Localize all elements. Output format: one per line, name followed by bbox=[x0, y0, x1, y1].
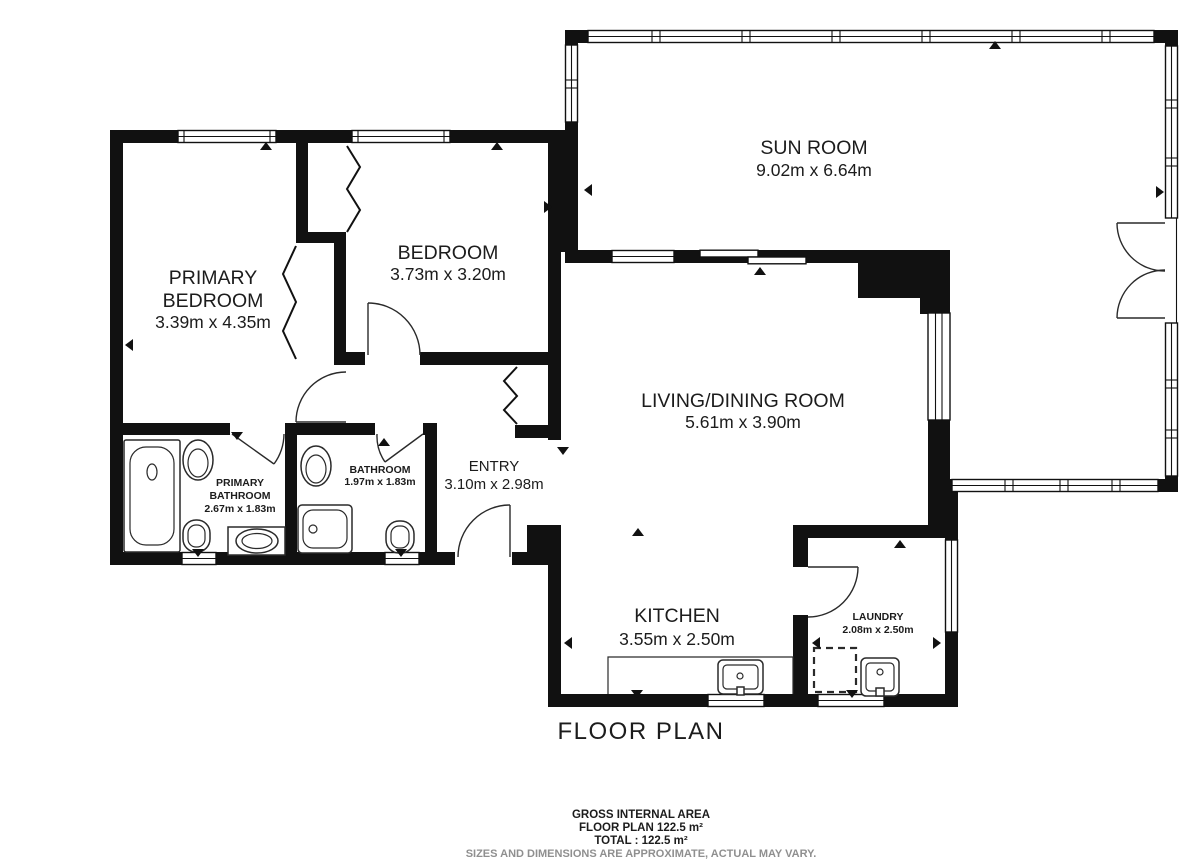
bathtub bbox=[124, 440, 180, 552]
entry-dims: 3.10m x 2.98m bbox=[444, 476, 543, 493]
bathroom-door-swing bbox=[377, 434, 385, 462]
closet-bifold-door bbox=[504, 367, 517, 424]
wall bbox=[110, 423, 230, 435]
marker-arrow bbox=[491, 142, 503, 150]
marker-arrow bbox=[564, 637, 572, 649]
sun-room-dims: 9.02m x 6.64m bbox=[756, 160, 872, 180]
bathroom-label: BATHROOM bbox=[349, 464, 410, 476]
marker-arrow bbox=[1156, 186, 1164, 198]
kitchen-counter bbox=[608, 657, 793, 694]
wall bbox=[548, 130, 578, 252]
primary-bathroom-door-swing bbox=[274, 434, 284, 464]
window bbox=[928, 313, 950, 420]
sliding-door-panel bbox=[748, 257, 806, 264]
marker-arrow bbox=[933, 637, 941, 649]
bedroom-dims: 3.73m x 3.20m bbox=[390, 264, 506, 284]
wall bbox=[512, 552, 561, 565]
primary-bathroom-label: BATHROOM bbox=[209, 490, 270, 502]
entry-door-swing bbox=[458, 505, 510, 557]
primary-bedroom-door-swing bbox=[296, 372, 346, 422]
wall bbox=[920, 250, 950, 314]
french-door-swing bbox=[1117, 223, 1165, 271]
kitchen-fixtures bbox=[608, 657, 793, 695]
wall bbox=[515, 425, 561, 438]
entry-label: ENTRY bbox=[469, 458, 520, 475]
kitchen-label: KITCHEN bbox=[634, 605, 720, 627]
wall bbox=[793, 615, 808, 707]
floor-plan-page: SUN ROOM 9.02m x 6.64m PRIMARY BEDROOM 3… bbox=[0, 0, 1200, 865]
french-door-swing bbox=[1117, 270, 1165, 318]
wall bbox=[548, 252, 561, 365]
disclaimer: SIZES AND DIMENSIONS ARE APPROXIMATE, AC… bbox=[466, 848, 817, 860]
wall bbox=[548, 560, 561, 700]
kitchen-sink-drain bbox=[737, 687, 744, 695]
sun-room-label: SUN ROOM bbox=[760, 137, 867, 159]
living-dining-label: LIVING/DINING ROOM bbox=[641, 390, 845, 412]
laundry-label: LAUNDRY bbox=[853, 611, 904, 623]
sliding-door-panel bbox=[700, 250, 758, 257]
primary-bedroom-label: BEDROOM bbox=[163, 290, 264, 312]
marker-arrow bbox=[231, 432, 243, 440]
floor-plan-drawing: SUN ROOM 9.02m x 6.64m PRIMARY BEDROOM 3… bbox=[0, 0, 1200, 865]
wall bbox=[285, 423, 375, 435]
wall bbox=[296, 143, 308, 243]
bathroom-fixtures bbox=[298, 446, 414, 553]
primary-bathroom-door-leaf bbox=[232, 434, 274, 464]
primary-bedroom-dims: 3.39m x 4.35m bbox=[155, 312, 271, 332]
bedroom-label: BEDROOM bbox=[398, 242, 499, 264]
wall bbox=[285, 430, 297, 552]
primary-bathroom-dims: 2.67m x 1.83m bbox=[204, 503, 275, 515]
wall bbox=[425, 423, 437, 552]
washer-space bbox=[814, 648, 856, 692]
marker-arrow bbox=[894, 540, 906, 548]
marker-arrow bbox=[557, 447, 569, 455]
wall bbox=[420, 352, 561, 365]
room-labels: SUN ROOM 9.02m x 6.64m PRIMARY BEDROOM 3… bbox=[155, 137, 913, 649]
footer: GROSS INTERNAL AREA FLOOR PLAN 122.5 m² … bbox=[466, 809, 817, 860]
closet-bifold-door bbox=[347, 146, 360, 232]
primary-bedroom-label: PRIMARY bbox=[169, 267, 258, 289]
wall bbox=[110, 130, 123, 565]
bathroom-door-leaf bbox=[385, 434, 423, 462]
bedroom-door-swing bbox=[368, 303, 420, 355]
living-dining-dims: 5.61m x 3.90m bbox=[685, 412, 801, 432]
bathroom-dims: 1.97m x 1.83m bbox=[344, 476, 415, 488]
laundry-fixtures bbox=[814, 648, 899, 696]
wall bbox=[793, 525, 808, 567]
marker-arrow bbox=[584, 184, 592, 196]
primary-bathroom-label: PRIMARY bbox=[216, 477, 264, 489]
total-area: TOTAL : 122.5 m² bbox=[594, 835, 687, 847]
gross-internal-area-heading: GROSS INTERNAL AREA bbox=[572, 809, 710, 821]
marker-arrow bbox=[632, 528, 644, 536]
page-title: FLOOR PLAN bbox=[557, 718, 724, 745]
wall bbox=[793, 525, 958, 538]
laundry-sink-drain bbox=[876, 688, 884, 696]
kitchen-dims: 3.55m x 2.50m bbox=[619, 629, 735, 649]
marker-arrow bbox=[378, 438, 390, 446]
toilet bbox=[183, 440, 213, 480]
closet-bifold-door bbox=[283, 246, 296, 359]
toilet bbox=[301, 446, 331, 486]
marker-arrow bbox=[125, 339, 133, 351]
laundry-door-swing bbox=[808, 567, 858, 617]
doors bbox=[232, 146, 1177, 617]
wall bbox=[334, 352, 365, 365]
floor-plan-area: FLOOR PLAN 122.5 m² bbox=[579, 822, 703, 834]
marker-arrow bbox=[754, 267, 766, 275]
laundry-dims: 2.08m x 2.50m bbox=[842, 624, 913, 636]
wall bbox=[334, 243, 346, 365]
wall bbox=[296, 232, 346, 243]
